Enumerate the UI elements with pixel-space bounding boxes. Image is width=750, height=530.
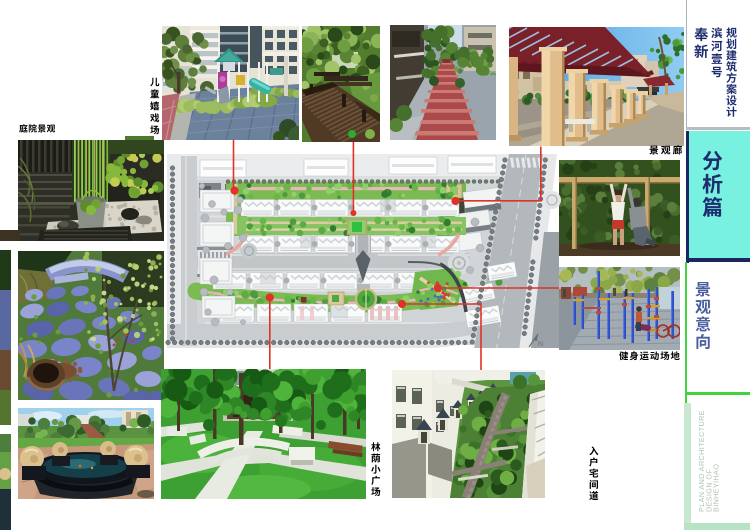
svg-text:BINHEYIHAO: BINHEYIHAO: [712, 464, 721, 512]
svg-text:N: N: [538, 341, 543, 348]
